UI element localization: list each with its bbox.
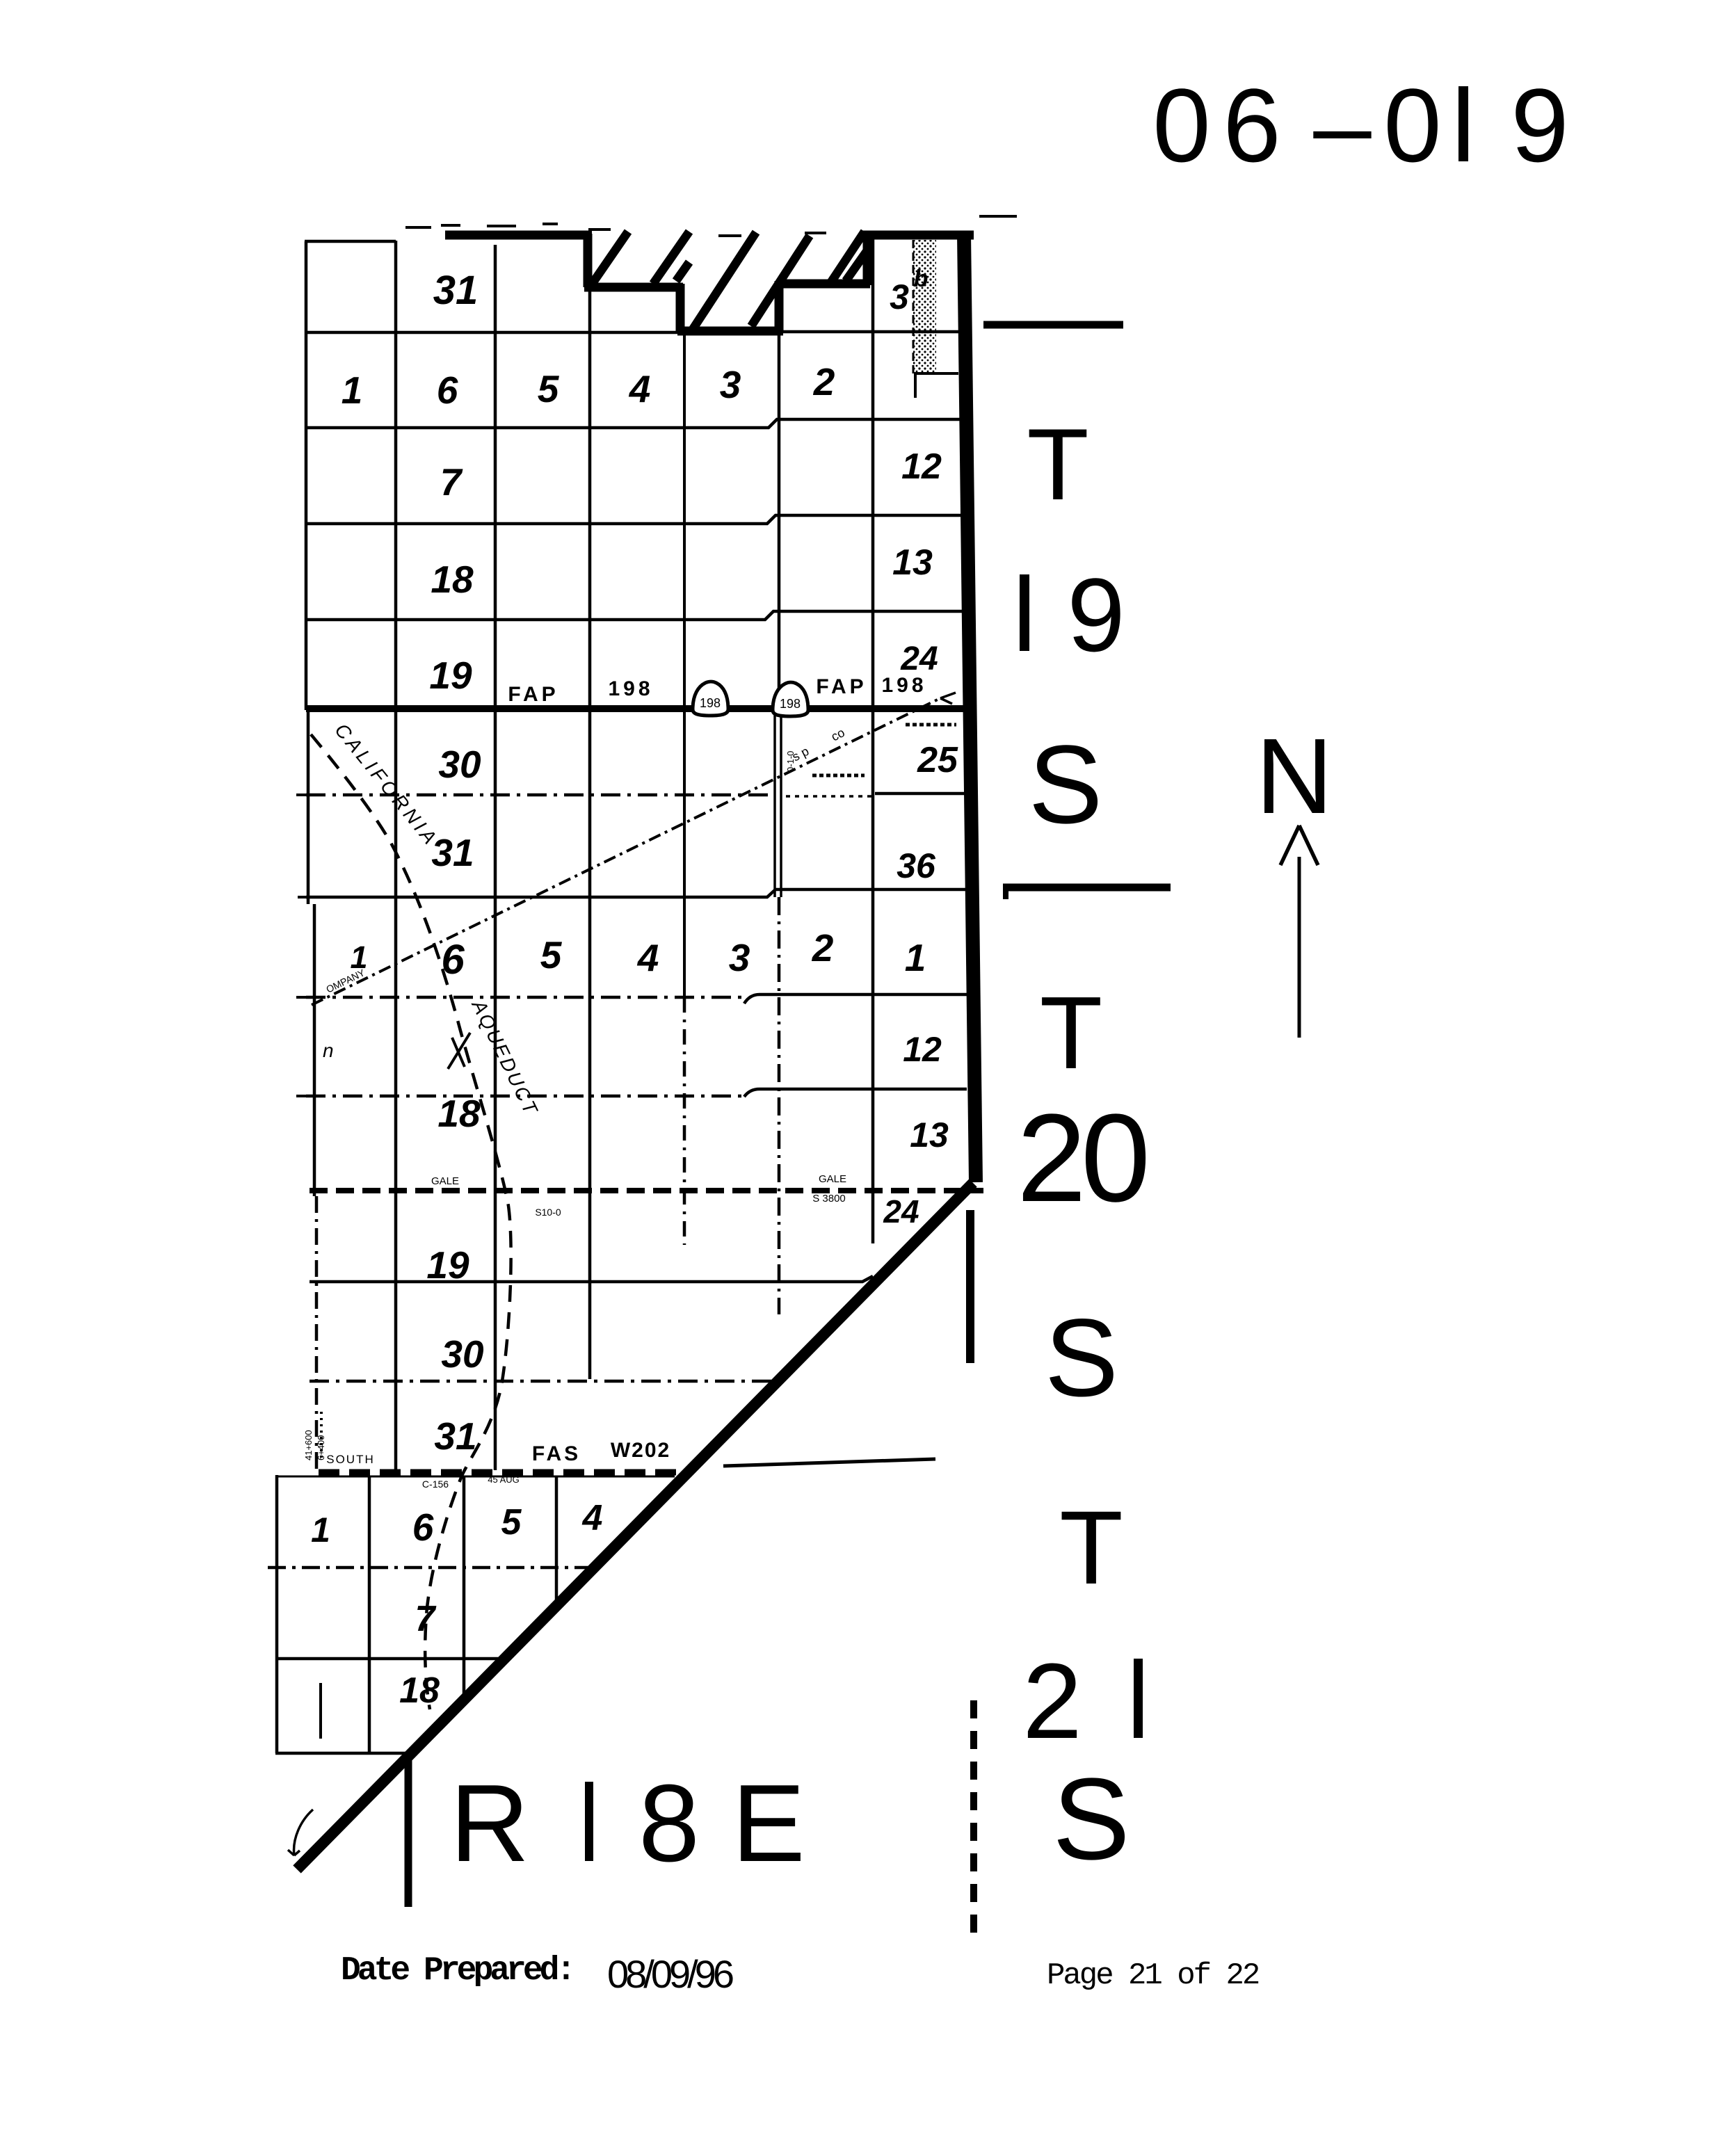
svg-text:T: T xyxy=(1059,1489,1123,1606)
svg-text:5: 5 xyxy=(501,1502,522,1542)
svg-text:5: 5 xyxy=(540,933,563,976)
svg-text:45 AUG: 45 AUG xyxy=(488,1474,520,1485)
svg-text:R: R xyxy=(450,1762,529,1885)
svg-text:08/09/96: 08/09/96 xyxy=(607,1952,733,1996)
svg-text:30: 30 xyxy=(438,743,481,786)
svg-text:24: 24 xyxy=(900,641,938,677)
svg-text:2: 2 xyxy=(813,360,835,403)
svg-text:0-1-0: 0-1-0 xyxy=(785,751,796,772)
svg-text:GALE: GALE xyxy=(819,1173,846,1185)
svg-text:3: 3 xyxy=(890,277,909,316)
svg-text:13: 13 xyxy=(892,542,933,583)
svg-text:S: S xyxy=(1029,722,1103,846)
svg-text:36: 36 xyxy=(897,846,936,885)
svg-text:Date Prepared:: Date Prepared: xyxy=(341,1952,572,1990)
svg-text:6: 6 xyxy=(437,369,458,412)
svg-text:41+600: 41+600 xyxy=(303,1430,314,1460)
svg-text:b: b xyxy=(914,266,929,292)
svg-text:6: 6 xyxy=(1223,67,1280,184)
svg-text:n: n xyxy=(323,1040,334,1061)
svg-text:E: E xyxy=(732,1762,805,1885)
svg-text:3: 3 xyxy=(720,363,741,406)
svg-text:1: 1 xyxy=(341,369,363,412)
svg-text:N: N xyxy=(1255,716,1333,836)
svg-text:25: 25 xyxy=(917,740,958,780)
svg-text:S: S xyxy=(1045,1296,1118,1419)
svg-text:4: 4 xyxy=(582,1498,603,1538)
svg-text:31: 31 xyxy=(434,1415,476,1458)
svg-text:S: S xyxy=(1052,1755,1130,1884)
svg-text:–: – xyxy=(1313,67,1372,184)
svg-text:19: 19 xyxy=(426,1243,469,1287)
svg-text:FAP: FAP xyxy=(508,683,558,706)
svg-text:198: 198 xyxy=(780,697,801,711)
svg-text:8: 8 xyxy=(638,1762,700,1885)
svg-text:C-156: C-156 xyxy=(422,1479,449,1490)
svg-text:3: 3 xyxy=(729,936,750,979)
svg-text:19: 19 xyxy=(429,654,472,697)
svg-text:24: 24 xyxy=(883,1193,919,1230)
svg-text:Page 21 of 22: Page 21 of 22 xyxy=(1047,1958,1259,1993)
svg-text:30: 30 xyxy=(441,1332,484,1376)
svg-text:20: 20 xyxy=(1017,1088,1146,1228)
svg-text:T: T xyxy=(1027,408,1088,521)
svg-text:GALE: GALE xyxy=(431,1175,459,1187)
svg-text:4: 4 xyxy=(637,936,659,979)
svg-text:FAP: FAP xyxy=(816,675,867,698)
svg-text:18: 18 xyxy=(399,1670,440,1711)
svg-text:0: 0 xyxy=(1152,67,1210,184)
svg-text:1: 1 xyxy=(905,936,926,979)
svg-text:6: 6 xyxy=(441,936,465,983)
svg-text:12: 12 xyxy=(903,1030,942,1069)
svg-text:31: 31 xyxy=(433,268,479,313)
svg-text:12: 12 xyxy=(901,446,942,487)
svg-text:5: 5 xyxy=(538,367,560,410)
svg-text:T: T xyxy=(1040,976,1102,1090)
svg-text:9: 9 xyxy=(1511,67,1568,184)
svg-text:18: 18 xyxy=(437,1092,481,1135)
svg-text:198: 198 xyxy=(608,677,653,700)
svg-text:13: 13 xyxy=(910,1115,949,1154)
svg-text:6: 6 xyxy=(412,1506,434,1549)
svg-text:1: 1 xyxy=(311,1510,330,1549)
svg-text:0: 0 xyxy=(1383,67,1441,184)
svg-text:2: 2 xyxy=(1022,1641,1082,1761)
svg-text:198: 198 xyxy=(700,696,721,710)
svg-text:7: 7 xyxy=(440,460,463,503)
svg-text:9: 9 xyxy=(1067,556,1125,673)
svg-text:S10-0: S10-0 xyxy=(535,1207,561,1218)
svg-text:2: 2 xyxy=(812,926,834,969)
svg-text:SOUTH: SOUTH xyxy=(326,1453,375,1466)
svg-text:18: 18 xyxy=(431,558,474,601)
svg-text:198: 198 xyxy=(881,674,926,697)
svg-text:W202: W202 xyxy=(611,1439,670,1462)
svg-text:4: 4 xyxy=(629,367,651,410)
svg-text:FAS: FAS xyxy=(532,1442,581,1465)
svg-text:S 3800: S 3800 xyxy=(812,1193,846,1205)
svg-text:7: 7 xyxy=(415,1599,437,1639)
